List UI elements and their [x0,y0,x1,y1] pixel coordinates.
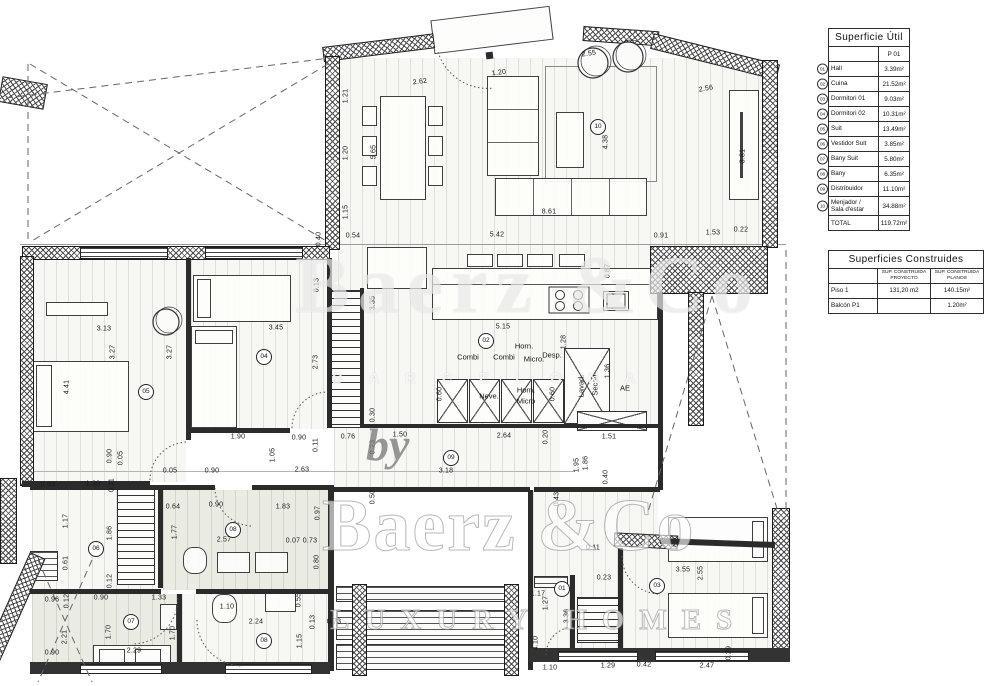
table-cell: 21.52m² [879,77,909,91]
coffee-table [556,112,584,168]
table-cell: Sup. CONSTRUIDA PROYECTO [878,269,931,283]
table-title: Superficie Útil [829,29,909,47]
table-row: 07Bany Suit5.80m² [829,152,909,167]
room-id-badge: 07 [817,154,828,165]
sofa [495,178,647,216]
table-cell: Piso 1 [829,284,878,298]
dimension-label: 2.63 [295,467,309,474]
table-cell: TOTAL [829,216,879,230]
pillow [197,279,211,318]
dimension-label: 0.96 [45,597,59,604]
floor-bany2 [182,594,328,663]
table-cell: Hall [829,62,879,76]
wall-suite-dorm02 [186,258,191,440]
watermark-tagline: LUXURY HOMES [330,604,747,637]
dimension-label: 1.05 [270,448,277,462]
dimension-label: 0.22 [734,227,748,234]
window [80,247,168,259]
dimension-label: 1.17 [63,514,70,528]
wall-right [762,60,778,248]
dimension-label: 1.86 [107,526,114,540]
dimension-label: 2.47 [700,663,714,670]
dimension-label: 1.15 [343,205,350,219]
dimension-label: 4.10 [533,636,540,650]
table-cell [829,47,879,61]
table-cell: Suit [829,122,879,136]
dimension-label: 0.20 [543,430,550,444]
fixture-label: Micro [517,397,535,406]
pillow [752,597,764,634]
dimension-label: 3.45 [269,325,283,332]
table-cell: 6.35m² [879,167,909,181]
dimension-label: 0.11 [313,438,320,452]
table-cell: Cuina [829,77,879,91]
chair [362,106,377,126]
table-row: Piso 1131,20 m2140.15m² [829,284,983,299]
room-id-badge: 01 [817,64,828,75]
dimension-label: 2.29 [127,648,141,655]
room-number-badge: 07 [123,614,139,630]
dimension-label: 0.42 [637,662,651,669]
dimension-label: 0.90 [292,435,306,442]
sink [255,552,288,573]
dimension-label: 0.05 [118,451,125,465]
wall-dorm01-right [772,508,790,656]
wall-bath-mid [30,589,161,594]
table-header-row: P 01 [829,47,909,62]
dimension-label: 0.63 [41,482,55,489]
table-cell: 9.03m² [879,92,909,106]
table-cell: Dormitori 01 [829,92,879,106]
dimension-label: 3.18 [439,468,453,475]
table-row: 04Dormitori 0210.31m² [829,107,909,122]
dimension-label: 0.60 [437,387,444,401]
floor-plan-canvas: Baerz &Co B A R C E L O N A by Baerz &Co… [0,0,800,686]
wall-left-lower [0,478,17,564]
table-cell: Distribuidor [829,182,879,196]
pillow [36,365,52,427]
room-number-badge: 05 [138,384,154,400]
dimension-label: 0.90 [107,449,114,463]
dimension-label: 0.90 [94,595,108,602]
room-number-badge: 08 [256,633,272,649]
fixture-label: Micro. [524,355,544,364]
dimension-label: 1.15 [297,634,304,648]
floor-plan-page: Baerz &Co B A R C E L O N A by Baerz &Co… [0,0,1000,686]
dimension-label: 0.61 [63,556,70,570]
dimension-label: 0.29 [726,646,733,660]
wall-left [20,256,34,486]
dimension-label: 1.70 [170,626,177,640]
dimension-label: 0.97 [315,506,322,520]
table-cell: 3.85m² [879,137,909,151]
table-header-row: Sup. CONSTRUIDA PROYECTOSup. CONSTRUIDA … [829,269,983,284]
pillow [752,521,764,558]
superficie-util-table: Superficie Útil P 0101Hall3.39m²02Cuina2… [828,28,910,231]
room-id-badge: 08 [817,169,828,180]
wall-living-top-right [582,26,659,46]
fixture-label: Combi [457,353,479,362]
room-id-badge: 03 [817,94,828,105]
sofa [487,76,539,176]
tv-sideboard [729,90,759,200]
table-cell: 1.20m² [931,299,983,313]
table-title: Superficies Construides [829,251,983,269]
watermark-by: by [366,418,409,471]
table-cell: Menjador / Sala d'estar [829,197,879,215]
dimension-label: 1.83 [276,504,290,511]
dimension-label: 0.60 [550,387,557,401]
table-row: 08Bany6.35m² [829,167,909,182]
dimension-label: 2.24 [249,619,263,626]
table-cell: 13.49m² [879,122,909,136]
table-cell: P 01 [879,47,909,61]
table-cell [878,299,931,313]
dimension-label: 0.11 [109,478,116,492]
table-row: 06Vestidor Suit3.85m² [829,137,909,152]
room-number-badge: 10 [590,119,606,135]
wall-bath-top [252,485,330,490]
table-cell: 34.88m² [879,197,909,215]
room-id-badge: 02 [817,79,828,90]
room-number-badge: 01 [554,581,570,597]
dimension-label: 1.20 [343,146,350,160]
dimension-label: 1.29 [601,663,615,670]
table-cell: 140.15m² [931,284,983,298]
table-cell: Sup. CONSTRUIDA PLANOS [931,269,983,283]
table-cell: Bany Suit [829,152,879,166]
watermark-top: Baerz &Co [295,238,761,332]
dimension-label: 0.07 [286,538,300,545]
room-number-badge: 09 [443,450,459,466]
table-row: 05Suit13.49m² [829,122,909,137]
table-cell: 3.39m² [879,62,909,76]
dimension-label: 0.13 [310,615,317,629]
sink [265,591,296,612]
superficies-construides-table: Superficies Construides Sup. CONSTRUIDA … [828,250,984,314]
room-number-badge: 06 [88,541,104,557]
dimension-label: 1.86 [583,456,590,470]
room-id-badge: 04 [817,109,828,120]
balcony-top [430,6,553,54]
fixture-label: Combi [493,353,515,362]
dimension-label: 1.21 [343,89,350,103]
dimension-label: 4.41 [64,380,71,394]
watermark-brand: Baerz &Co [322,484,695,569]
dimension-label: 4.38 [603,135,610,149]
dimension-label: 0.80 [314,555,321,569]
wall-bany-divider [177,594,182,670]
dimension-label: 0.73 [303,538,317,545]
table-total-row: TOTAL119.72m² [829,216,909,230]
chair [428,136,443,156]
fixture-label: Neve. [479,392,499,401]
dimension-label: 3.13 [97,326,111,333]
dimension-label: 0.55 [296,593,303,607]
room-number-badge: 04 [256,349,272,365]
fixture-label: Horn. [515,342,533,351]
wall-dorm02-bottom [190,428,290,433]
stairs-vestidor [117,487,155,585]
dimension-label: 0.76 [341,434,355,441]
dimension-label: 1.51 [602,434,616,441]
chair [428,166,443,186]
dimension-label: 1.10 [220,604,234,611]
dimension-label: 8.61 [542,209,556,216]
dimension-label: 1.77 [172,525,179,539]
room-number-badge: 03 [649,578,665,594]
dimension-label: 3.27 [110,345,117,359]
dimension-label: 0.40 [603,470,610,484]
dimension-label: 1.53 [706,230,720,237]
room-id-badge: 09 [817,184,828,195]
table-cell: 131,20 m2 [878,284,931,298]
room-number-badge: 02 [478,333,494,349]
room-id-badge: 05 [817,124,828,135]
dimension-label: 1.90 [231,434,245,441]
chair [362,166,377,186]
dimension-label: 0.23 [597,575,611,582]
dimension-label: 1.10 [543,665,557,672]
chair [428,106,443,126]
table-cell: Dormitori 02 [829,107,879,121]
wall-vestidor-bany [158,488,163,588]
pillow [195,330,233,344]
window [205,247,303,259]
dimension-label: 0.90 [205,468,219,475]
table-cell: Vestidor Suit [829,137,879,151]
dimension-label: 2.57 [217,537,231,544]
dimension-label: 1.30 [86,481,100,488]
dimension-label: 1.33 [152,595,166,602]
table-row: 09Distribuidor11.10m² [829,182,909,197]
dimension-label: 0.90 [45,650,59,657]
dimension-label: 1.95 [574,458,581,472]
dimension-label: 2.73 [313,355,320,369]
dresser [46,302,108,316]
table-cell: 10.31m² [879,107,909,121]
room-number-badge: 08 [225,522,241,538]
window [225,664,312,674]
dimension-label: 0.05 [163,468,177,475]
dining-table [380,96,426,200]
window [558,651,638,661]
table-row: 10Menjador / Sala d'estar34.88m² [829,197,909,216]
tv [740,112,743,178]
table-cell: 119.72m² [879,216,909,230]
dimension-label: 1.70 [106,625,113,639]
table-cell: Balcón P1 [829,299,878,313]
wall-bath-mid [196,589,330,594]
ae-closet [577,411,647,431]
wall-living-left [325,56,340,250]
fixture-label: Desp. [542,351,562,360]
dimension-label: 3.27 [167,345,174,359]
sink [217,552,250,573]
dimension-label: 0.90 [209,502,223,509]
table-row: 01Hall3.39m² [829,62,909,77]
table-cell: 5.80m² [879,152,909,166]
watermark-city: B A R C E L O N A [332,370,646,387]
wall-top-left-corner [0,76,48,110]
table-cell: 11.10m² [879,182,909,196]
wall-bath-top [160,485,215,490]
dimension-label: 2.64 [497,433,511,440]
room-id-badge: 06 [817,139,828,150]
dimension-label: 0.12 [64,594,71,608]
window [655,651,749,661]
toilet [183,547,207,574]
dimension-label: 2.55 [698,566,705,580]
wall-marker [486,52,494,60]
table-row: 02Cuina21.52m² [829,77,909,92]
table-cell [829,269,878,283]
window [80,664,162,674]
dimension-label: 5.65 [371,145,378,159]
table-row: 03Dormitori 019.03m² [829,92,909,107]
room-id-badge: 10 [817,201,828,212]
dimension-label: 2.21 [62,630,69,644]
dimension-label: 3.81 [740,149,747,163]
dimension-label: 0.12 [107,574,114,588]
dimension-label: 1.28 [561,335,568,349]
dimension-label: 0.64 [166,504,180,511]
table-row: Balcón P11.20m² [829,299,983,313]
table-cell: Bany [829,167,879,181]
